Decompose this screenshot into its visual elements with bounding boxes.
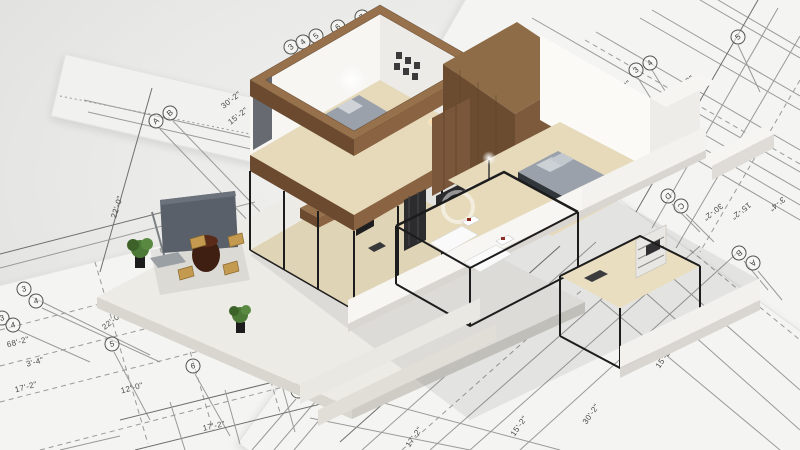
wall-lamp-glow [338, 66, 366, 94]
blueprint-scene: 234534567AB343456789DCBA30'-2"15'-2"15'-… [0, 0, 800, 450]
potted-plant-1 [127, 238, 153, 268]
house-model [0, 0, 800, 450]
